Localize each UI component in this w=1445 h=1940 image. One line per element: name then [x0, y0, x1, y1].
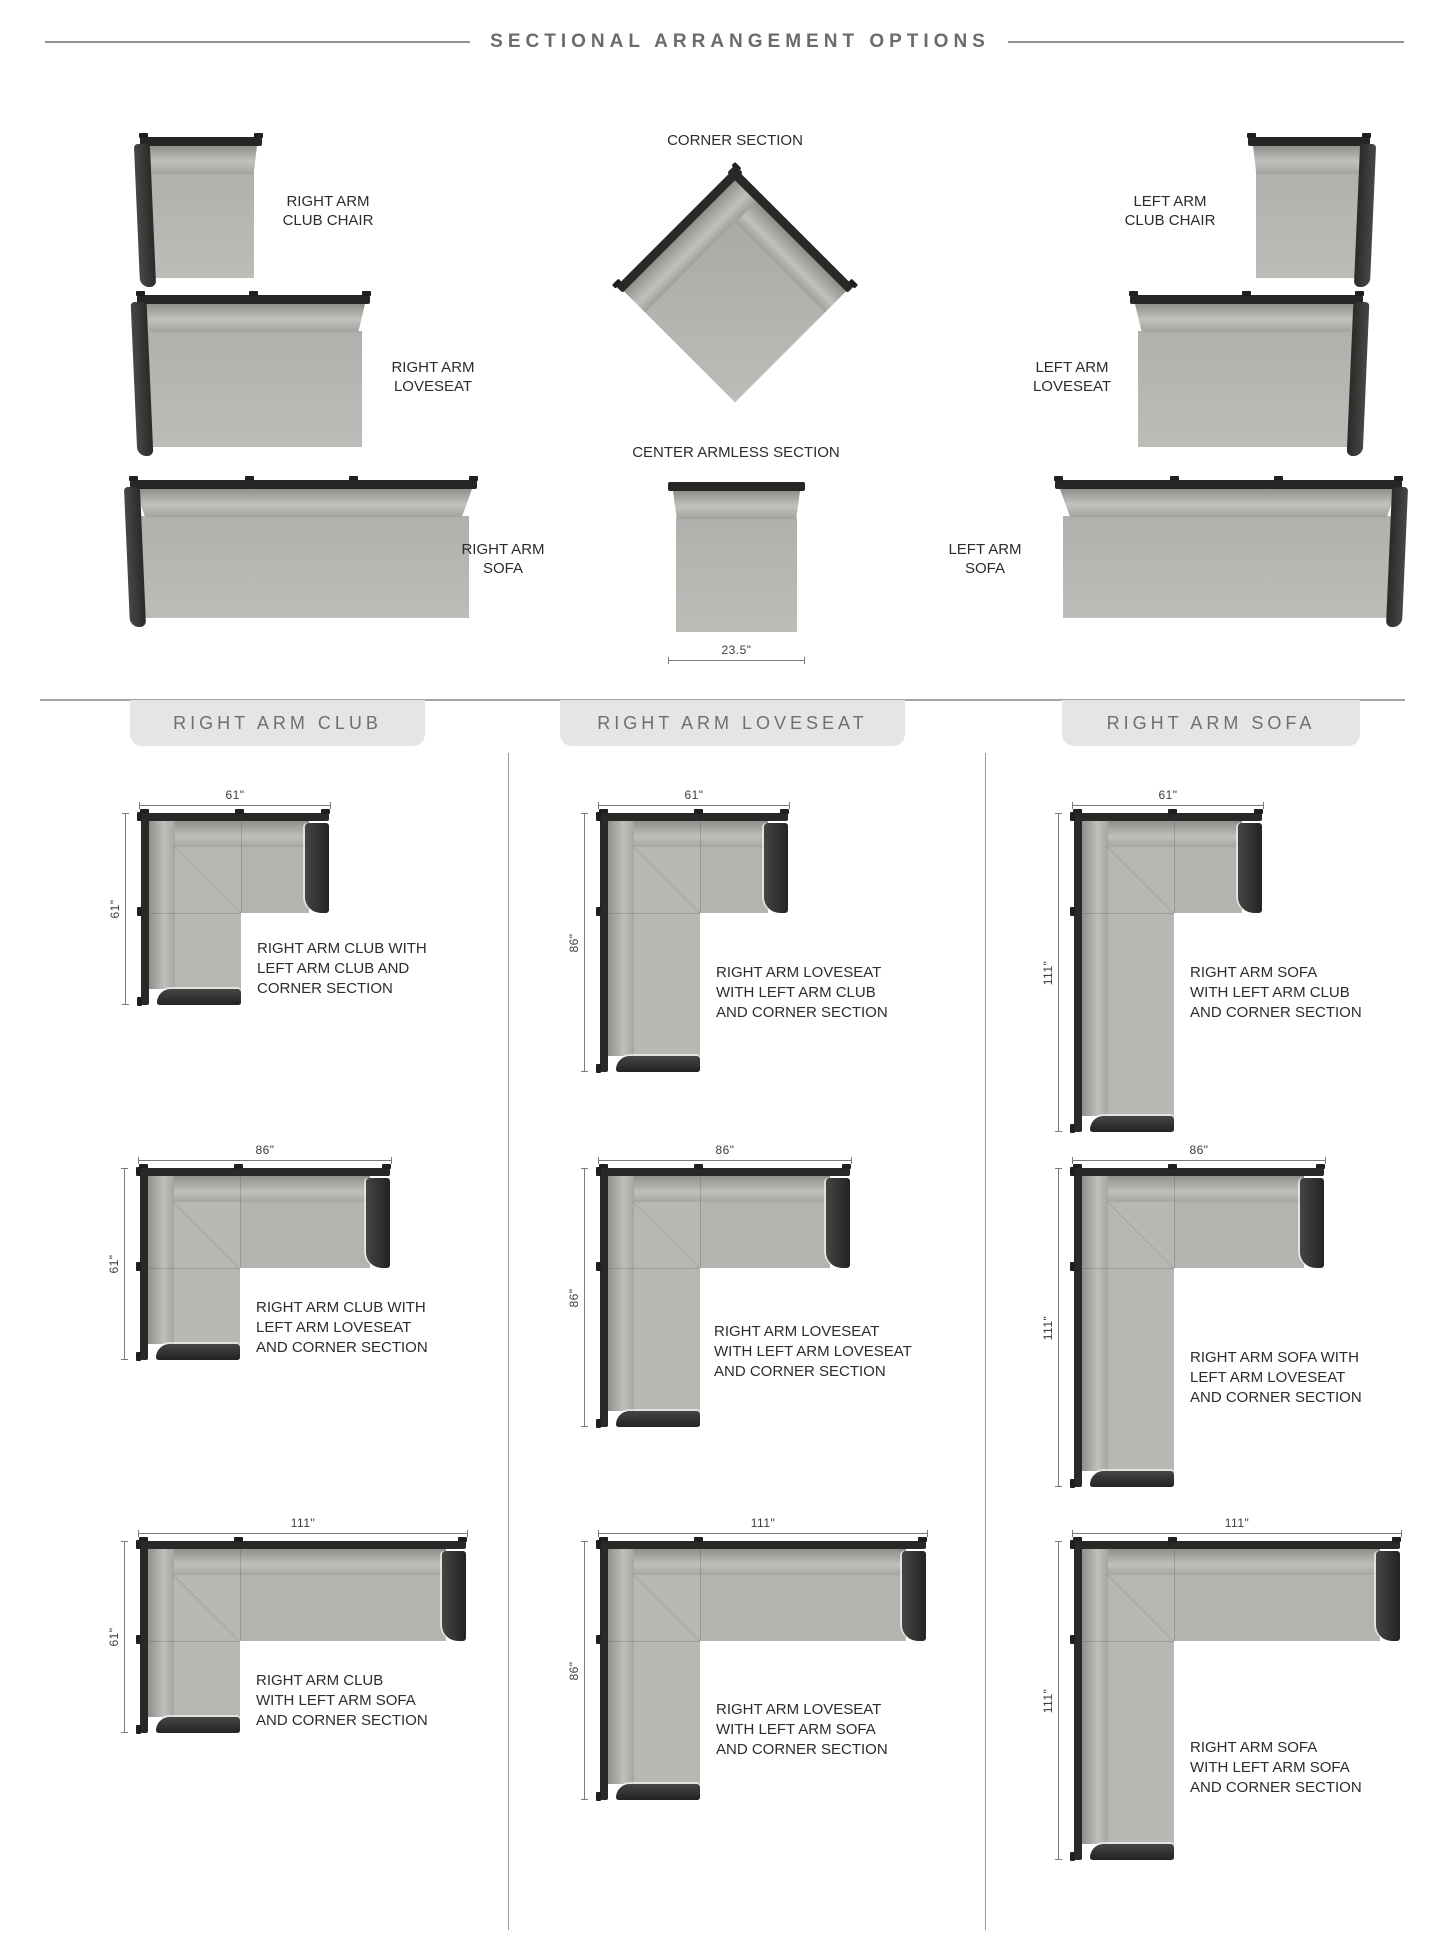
- rail-bracket: [596, 1419, 601, 1428]
- rail-bracket: [137, 907, 142, 916]
- back-rail: [140, 1541, 148, 1733]
- width-dimension: 111": [138, 1533, 468, 1534]
- rail-bracket: [136, 1635, 141, 1644]
- arm: [442, 1551, 466, 1641]
- back-cushion: [1082, 1549, 1108, 1844]
- back-rail: [1130, 295, 1363, 304]
- back-rail: [1055, 480, 1402, 489]
- arrangement-caption: RIGHT ARM CLUB WITH LEFT ARM LOVESEAT AN…: [256, 1298, 446, 1358]
- back-cushion: [1082, 821, 1108, 1116]
- arrangement-caption: RIGHT ARM CLUB WITH LEFT ARM SOFA AND CO…: [256, 1671, 446, 1731]
- seat: [1138, 331, 1355, 447]
- back-rail: [141, 813, 149, 1005]
- rail-bracket: [780, 809, 789, 814]
- rail-bracket: [362, 291, 371, 296]
- rail-bracket: [1070, 907, 1075, 916]
- back-cushion: [145, 146, 257, 174]
- seat: [1063, 516, 1394, 618]
- tab-right-arm-loveseat: RIGHT ARM LOVESEAT: [560, 700, 905, 746]
- depth-dimension: 86": [584, 1541, 585, 1800]
- corner-section-label: CORNER SECTION: [635, 131, 835, 150]
- seat: [630, 1198, 700, 1413]
- seam: [1083, 1268, 1174, 1269]
- seat: [171, 843, 241, 991]
- rail-bracket: [234, 1164, 243, 1169]
- left-arm-loveseat-label: LEFT ARM LOVESEAT: [1012, 358, 1132, 396]
- rail-bracket: [848, 279, 858, 289]
- back-rail: [1074, 1168, 1324, 1176]
- width-dimension-label: 61": [1072, 788, 1264, 802]
- seat: [148, 173, 254, 278]
- rail-bracket: [349, 476, 358, 481]
- back-cushion: [1082, 1549, 1380, 1575]
- seat: [630, 1571, 700, 1786]
- seam: [149, 1641, 240, 1642]
- left-arm-sofa-label: LEFT ARM SOFA: [925, 540, 1045, 578]
- back-cushion: [673, 491, 800, 519]
- corner-section-diagram: [618, 168, 853, 403]
- rail-bracket: [136, 1262, 141, 1271]
- left-arm-club-chair-label: LEFT ARM CLUB CHAIR: [1110, 192, 1230, 230]
- seam: [700, 1177, 701, 1268]
- rail-bracket: [136, 1540, 141, 1549]
- depth-dimension-label: 111": [1041, 1315, 1055, 1340]
- rail-bracket: [1070, 1852, 1075, 1861]
- arrangement-caption: RIGHT ARM LOVESEAT WITH LEFT ARM SOFA AN…: [716, 1700, 906, 1760]
- back-rail: [1074, 1541, 1082, 1860]
- seam: [700, 822, 701, 913]
- back-cushion: [608, 1176, 634, 1411]
- width-dimension: 61": [1072, 805, 1264, 806]
- rail-bracket: [1070, 1540, 1075, 1549]
- arm: [902, 1551, 926, 1641]
- arrangement-caption: RIGHT ARM LOVESEAT WITH LEFT ARM CLUB AN…: [716, 963, 906, 1023]
- width-dimension: 86": [1072, 1160, 1326, 1161]
- rail-bracket: [1254, 809, 1263, 814]
- arm: [616, 1411, 700, 1427]
- depth-dimension: 86": [584, 813, 585, 1072]
- back-cushion: [608, 1549, 634, 1784]
- rail-bracket: [596, 1635, 601, 1644]
- back-rail: [1248, 137, 1370, 146]
- rail-bracket: [596, 1792, 601, 1801]
- back-cushion: [608, 821, 634, 1056]
- rail-bracket: [1316, 1164, 1325, 1169]
- rail-bracket: [1394, 476, 1403, 481]
- arm: [1090, 1844, 1174, 1860]
- width-dimension-label: 111": [598, 1516, 928, 1530]
- seam: [609, 1268, 700, 1269]
- back-rail: [1074, 813, 1262, 821]
- back-rail: [1074, 1168, 1082, 1487]
- arm: [366, 1178, 390, 1268]
- rail-bracket: [235, 809, 244, 814]
- arrangement-caption: RIGHT ARM SOFA WITH LEFT ARM CLUB AND CO…: [1190, 963, 1380, 1023]
- arm: [764, 823, 788, 913]
- rail-bracket: [694, 1164, 703, 1169]
- arm: [157, 989, 241, 1005]
- rail-bracket: [612, 279, 622, 289]
- rail-bracket: [1070, 1635, 1075, 1644]
- back-rail: [600, 1541, 608, 1800]
- width-dimension: 61": [139, 805, 331, 806]
- seam: [1174, 822, 1175, 913]
- width-dimension-label: 86": [138, 1143, 392, 1157]
- rail-bracket: [1247, 133, 1256, 138]
- rail-bracket: [596, 1167, 601, 1176]
- arm: [1090, 1471, 1174, 1487]
- width-dimension-label: 86": [598, 1143, 852, 1157]
- center-armless-section-diagram: [668, 482, 805, 632]
- depth-dimension: 61": [124, 1541, 125, 1733]
- seam: [150, 913, 241, 914]
- rail-bracket: [1168, 1164, 1177, 1169]
- rail-bracket: [321, 809, 330, 814]
- column-divider: [985, 753, 986, 1930]
- seat: [170, 1198, 240, 1346]
- back-cushion: [135, 489, 472, 517]
- rail-bracket: [254, 133, 263, 138]
- sectional-diagram: [600, 1541, 926, 1800]
- width-dimension-label: 86": [1072, 1143, 1326, 1157]
- left-arm-sofa-diagram: [1055, 480, 1402, 618]
- depth-dimension-label: 111": [1041, 960, 1055, 985]
- back-rail: [600, 1541, 926, 1549]
- back-cushion: [142, 304, 365, 332]
- rail-bracket: [1070, 1124, 1075, 1133]
- back-cushion: [1253, 146, 1365, 174]
- center-armless-section-label: CENTER ARMLESS SECTION: [616, 443, 856, 462]
- rail-bracket: [1392, 1537, 1401, 1542]
- width-dimension: 86": [138, 1160, 392, 1161]
- back-cushion: [148, 1176, 370, 1202]
- rail-bracket: [1362, 133, 1371, 138]
- depth-dimension: 86": [584, 1168, 585, 1427]
- back-rail: [130, 480, 477, 489]
- back-rail: [600, 813, 608, 1072]
- seat: [676, 518, 797, 632]
- depth-dimension: 111": [1058, 1541, 1059, 1860]
- width-dimension-label: 61": [139, 788, 331, 802]
- rail-bracket: [139, 133, 148, 138]
- rail-bracket: [1129, 291, 1138, 296]
- arm: [1238, 823, 1262, 913]
- tab-right-arm-club: RIGHT ARM CLUB: [130, 700, 425, 746]
- left-arm-loveseat-diagram: [1130, 295, 1363, 447]
- seam: [1174, 1177, 1175, 1268]
- rail-bracket: [137, 997, 142, 1006]
- back-rail: [140, 1168, 390, 1176]
- rail-bracket: [918, 1537, 927, 1542]
- back-cushion: [1082, 1176, 1304, 1202]
- seat: [145, 331, 362, 447]
- rail-bracket: [245, 476, 254, 481]
- arrangement-caption: RIGHT ARM SOFA WITH LEFT ARM LOVESEAT AN…: [1190, 1348, 1380, 1408]
- rail-bracket: [1355, 291, 1364, 296]
- arm: [1300, 1178, 1324, 1268]
- rail-bracket: [136, 291, 145, 296]
- column-divider: [508, 753, 509, 1930]
- back-cushion: [148, 1549, 446, 1575]
- back-cushion: [1060, 489, 1397, 517]
- rail-bracket: [1242, 291, 1251, 296]
- rail-bracket: [458, 1537, 467, 1542]
- depth-dimension: 61": [124, 1168, 125, 1360]
- title-rule-left: [45, 41, 470, 43]
- page-title: SECTIONAL ARRANGEMENT OPTIONS: [480, 31, 1000, 53]
- depth-dimension-label: 61": [107, 1627, 121, 1646]
- seam: [700, 1550, 701, 1641]
- back-cushion: [608, 1549, 906, 1575]
- arrangement-caption: RIGHT ARM SOFA WITH LEFT ARM SOFA AND CO…: [1190, 1738, 1380, 1798]
- rail-bracket: [469, 476, 478, 481]
- tab-right-arm-sofa: RIGHT ARM SOFA: [1062, 700, 1360, 746]
- arm: [1376, 1551, 1400, 1641]
- rail-bracket: [1170, 476, 1179, 481]
- seam: [1174, 1550, 1175, 1641]
- width-dimension-label: 111": [138, 1516, 468, 1530]
- seam: [240, 1550, 241, 1641]
- rail-bracket: [1168, 809, 1177, 814]
- seat: [170, 1571, 240, 1719]
- title-rule-right: [1008, 41, 1404, 43]
- right-arm-loveseat-label: RIGHT ARM LOVESEAT: [373, 358, 493, 396]
- rail-bracket: [1054, 476, 1063, 481]
- seat: [138, 516, 469, 618]
- width-dimension: 111": [1072, 1533, 1402, 1534]
- back-rail: [1074, 813, 1082, 1132]
- rail-bracket: [1070, 812, 1075, 821]
- width-dimension: 61": [598, 805, 790, 806]
- seam: [1083, 913, 1174, 914]
- armless-width-dimension-label: 23.5": [668, 643, 805, 657]
- rail-bracket: [249, 291, 258, 296]
- right-arm-sofa-label: RIGHT ARM SOFA: [443, 540, 563, 578]
- back-rail: [140, 137, 262, 146]
- right-arm-sofa-diagram: [130, 480, 477, 618]
- back-rail: [140, 1541, 466, 1549]
- rail-bracket: [596, 1064, 601, 1073]
- rail-bracket: [136, 1725, 141, 1734]
- arm: [826, 1178, 850, 1268]
- back-rail: [600, 1168, 850, 1176]
- rail-bracket: [1274, 476, 1283, 481]
- sectional-diagram: [600, 1168, 850, 1427]
- rail-bracket: [136, 1352, 141, 1361]
- rail-bracket: [1070, 1262, 1075, 1271]
- seat: [1104, 843, 1174, 1118]
- rail-bracket: [596, 812, 601, 821]
- right-arm-club-chair-label: RIGHT ARM CLUB CHAIR: [268, 192, 388, 230]
- arm: [156, 1717, 240, 1733]
- back-rail: [600, 813, 788, 821]
- rail-bracket: [596, 907, 601, 916]
- catalog-page: SECTIONAL ARRANGEMENT OPTIONS RIGHT ARM …: [0, 0, 1445, 1940]
- arm: [305, 823, 329, 913]
- rail-bracket: [694, 1537, 703, 1542]
- right-arm-loveseat-diagram: [137, 295, 370, 447]
- armless-width-dimension: 23.5": [668, 660, 805, 661]
- rail-bracket: [842, 1164, 851, 1169]
- right-arm-club-chair-diagram: [140, 137, 262, 278]
- rail-bracket: [382, 1164, 391, 1169]
- back-rail: [137, 295, 370, 304]
- back-rail: [141, 813, 329, 821]
- arrangement-caption: RIGHT ARM LOVESEAT WITH LEFT ARM LOVESEA…: [714, 1322, 914, 1382]
- arm: [616, 1056, 700, 1072]
- arm: [1090, 1116, 1174, 1132]
- rail-bracket: [1070, 1479, 1075, 1488]
- rail-bracket: [1070, 1167, 1075, 1176]
- arm: [156, 1344, 240, 1360]
- depth-dimension: 111": [1058, 813, 1059, 1132]
- back-cushion: [1082, 1176, 1108, 1471]
- seat: [1256, 173, 1362, 278]
- rail-bracket: [596, 1262, 601, 1271]
- arm: [616, 1784, 700, 1800]
- rail-bracket: [1168, 1537, 1177, 1542]
- seat: [1104, 1571, 1174, 1846]
- rail-bracket: [136, 1167, 141, 1176]
- seat: [1104, 1198, 1174, 1473]
- sectional-diagram: [1074, 1168, 1324, 1487]
- seam: [240, 1177, 241, 1268]
- back-cushion: [149, 821, 175, 989]
- back-rail: [140, 1168, 148, 1360]
- back-cushion: [608, 1176, 830, 1202]
- depth-dimension-label: 61": [108, 899, 122, 918]
- seam: [241, 822, 242, 913]
- back-rail: [600, 1168, 608, 1427]
- seat: [630, 843, 700, 1058]
- back-rail: [1074, 1541, 1400, 1549]
- depth-dimension-label: 111": [1041, 1688, 1055, 1713]
- rail-bracket: [596, 1540, 601, 1549]
- back-cushion: [148, 1176, 174, 1344]
- depth-dimension-label: 61": [107, 1254, 121, 1273]
- width-dimension-label: 111": [1072, 1516, 1402, 1530]
- arrangement-caption: RIGHT ARM CLUB WITH LEFT ARM CLUB AND CO…: [257, 939, 447, 999]
- depth-dimension: 111": [1058, 1168, 1059, 1487]
- seam: [1083, 1641, 1174, 1642]
- rail-bracket: [137, 812, 142, 821]
- depth-dimension-label: 86": [567, 1288, 581, 1307]
- rail-bracket: [234, 1537, 243, 1542]
- depth-dimension-label: 86": [567, 933, 581, 952]
- width-dimension: 111": [598, 1533, 928, 1534]
- seam: [149, 1268, 240, 1269]
- seam: [609, 1641, 700, 1642]
- back-rail: [668, 482, 805, 491]
- sectional-diagram: [600, 813, 788, 1072]
- seam: [609, 913, 700, 914]
- back-cushion: [148, 1549, 174, 1717]
- width-dimension-label: 61": [598, 788, 790, 802]
- depth-dimension-label: 86": [567, 1661, 581, 1680]
- sectional-diagram: [1074, 1541, 1400, 1860]
- rail-bracket: [694, 809, 703, 814]
- left-arm-club-chair-diagram: [1248, 137, 1370, 278]
- rail-bracket: [129, 476, 138, 481]
- depth-dimension: 61": [125, 813, 126, 1005]
- back-cushion: [1135, 304, 1358, 332]
- width-dimension: 86": [598, 1160, 852, 1161]
